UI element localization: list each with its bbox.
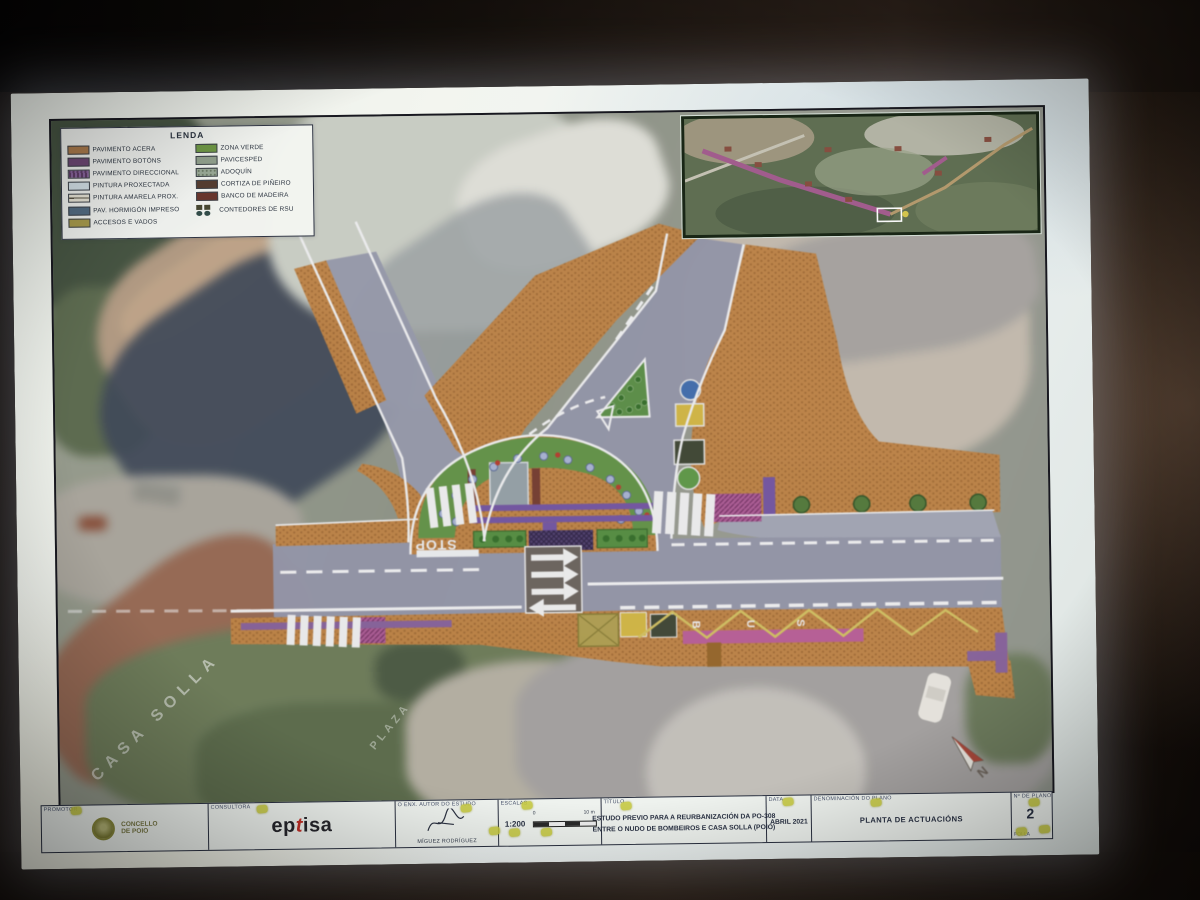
plan-number: 2 (1012, 805, 1049, 822)
highlight-mark (460, 804, 472, 813)
inset-svg (684, 114, 1038, 235)
highlight-mark (256, 805, 268, 814)
color-swatch (67, 145, 89, 154)
color-swatch (196, 180, 218, 189)
stop-marking: STOP (414, 537, 456, 554)
color-swatch (68, 194, 90, 203)
titleblock-plan-name: DENOMINACIÓN DO PLANO PLANTA DE ACTUACIÓ… (812, 793, 1013, 842)
tactile-pad (359, 617, 385, 643)
color-swatch (68, 169, 90, 178)
tactile-pad (709, 493, 762, 522)
highlight-mark (870, 798, 882, 807)
highlight-mark (1016, 827, 1028, 836)
plan-map: B U S STOP N CASA SOLL (51, 107, 1052, 805)
color-swatch (68, 157, 90, 166)
containers-icon (196, 205, 216, 216)
kerb-access (707, 642, 721, 666)
titleblock-author: O ENX. AUTOR DO ESTUDO MÍGUEZ RODRÍGUEZ (396, 800, 500, 847)
promotor-name: CONCELLO DE POIO (121, 820, 158, 835)
wall-shadow-top (0, 0, 1200, 92)
color-swatch (196, 192, 218, 201)
location-inset-map (681, 111, 1041, 238)
north-arrow: N (946, 731, 994, 783)
svg-text:B: B (690, 621, 702, 629)
median-arrows (525, 546, 582, 617)
svg-text:S: S (794, 619, 806, 627)
highlight-mark (620, 802, 632, 811)
color-swatch (196, 155, 218, 164)
concello-crest-icon (92, 817, 115, 840)
drawing-frame: B U S STOP N CASA SOLL (49, 105, 1055, 807)
legend: LENDA PAVIMENTO ACERA PAVIMENTO BOTÓNS P… (60, 124, 315, 240)
highlight-mark (509, 828, 521, 837)
plan-name: PLANTA DE ACTUACIÓNS (860, 814, 963, 824)
projected-plan-sheet: B U S STOP N CASA SOLL (11, 79, 1100, 870)
tactile-strip (763, 477, 776, 515)
svg-text:U: U (744, 620, 756, 628)
color-swatch (195, 143, 217, 152)
color-swatch (196, 168, 218, 177)
scale-value: 1:200 (505, 819, 526, 828)
author-name: MÍGUEZ RODRÍGUEZ (396, 838, 498, 845)
highlight-mark (521, 801, 533, 810)
highlight-mark (541, 828, 553, 837)
highlight-mark (1028, 798, 1040, 807)
color-swatch (68, 218, 90, 227)
wooden-bench (532, 468, 541, 506)
highlight-mark (782, 797, 794, 806)
highlight-mark (70, 806, 82, 815)
legend-title: LENDA (67, 128, 307, 141)
titleblock-promotor: PROMOTOR CONCELLO DE POIO (42, 804, 210, 852)
scale-bar (533, 820, 597, 827)
white-car (917, 671, 953, 724)
project-title-line2: ENTRE O NUDO DE BOMBEIROS E CASA SOLLA (… (593, 822, 776, 835)
north-label: N (974, 763, 991, 781)
legend-item: ACCESOS E VADOS (68, 215, 190, 229)
eptisa-logo: eptisa (271, 814, 332, 838)
titleblock-scale: ESCALAS 1:200 010 m (499, 798, 603, 845)
titleblock-consultora: CONSULTORA eptisa (209, 801, 397, 850)
color-swatch (68, 206, 90, 215)
highlight-mark (1039, 825, 1051, 834)
highlight-mark (489, 826, 501, 835)
color-swatch (68, 182, 90, 191)
date-value: ABRIL 2021 (770, 818, 808, 826)
legend-item: CONTEDORES DE RSU (196, 201, 300, 218)
